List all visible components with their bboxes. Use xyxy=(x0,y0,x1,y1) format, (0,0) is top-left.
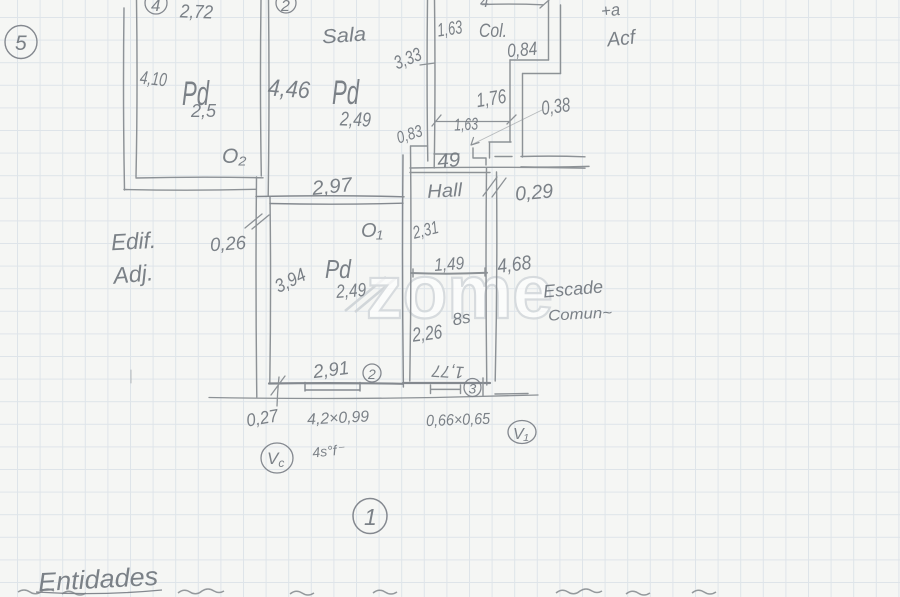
svg-text:3: 3 xyxy=(469,381,477,397)
svg-text:2,49: 2,49 xyxy=(339,108,372,131)
svg-text:2,72: 2,72 xyxy=(179,1,214,23)
svg-text:1: 1 xyxy=(364,504,377,530)
svg-text:V₁: V₁ xyxy=(513,426,529,443)
svg-text:4: 4 xyxy=(480,0,489,11)
svg-text:Pd: Pd xyxy=(325,254,352,284)
svg-text:5: 5 xyxy=(15,32,27,55)
svg-text:2,5: 2,5 xyxy=(190,101,217,121)
svg-text:2,26: 2,26 xyxy=(410,321,444,347)
svg-text:1,63: 1,63 xyxy=(436,17,464,41)
svg-text:Comun~: Comun~ xyxy=(548,304,613,324)
svg-text:1,77: 1,77 xyxy=(431,361,464,382)
svg-text:Edif.: Edif. xyxy=(110,227,156,255)
svg-text:4: 4 xyxy=(151,0,160,15)
svg-text:2: 2 xyxy=(367,366,376,382)
svg-text:O₁: O₁ xyxy=(361,220,383,242)
svg-text:4,46: 4,46 xyxy=(267,74,311,104)
svg-text:4,10: 4,10 xyxy=(139,68,168,92)
svg-text:0,26: 0,26 xyxy=(209,233,247,256)
svg-text:0,84: 0,84 xyxy=(506,39,538,63)
svg-text:2,49: 2,49 xyxy=(335,280,368,303)
svg-text:1,63: 1,63 xyxy=(454,114,479,134)
svg-text:2: 2 xyxy=(280,0,290,15)
svg-text:Hall: Hall xyxy=(427,180,464,203)
svg-text:0,29: 0,29 xyxy=(514,180,554,205)
svg-text:Col.: Col. xyxy=(479,21,507,42)
svg-text:0,66×0,65: 0,66×0,65 xyxy=(426,411,491,430)
svg-text:Adj.: Adj. xyxy=(110,259,154,289)
svg-text:O₂: O₂ xyxy=(222,145,246,168)
svg-text:+a: +a xyxy=(600,0,621,21)
svg-text:1,49: 1,49 xyxy=(433,253,464,275)
svg-text:Acf: Acf xyxy=(605,26,638,51)
svg-text:2,91: 2,91 xyxy=(311,358,350,383)
svg-text:49: 49 xyxy=(436,149,461,173)
svg-text:Sala: Sala xyxy=(321,23,366,48)
svg-text:Pd: Pd xyxy=(332,74,360,112)
svg-text:2,97: 2,97 xyxy=(310,174,354,200)
svg-text:8s: 8s xyxy=(451,307,473,329)
svg-text:0,38: 0,38 xyxy=(540,94,572,120)
svg-text:4,2×0,99: 4,2×0,99 xyxy=(307,408,370,428)
svg-text:4,68: 4,68 xyxy=(496,252,532,278)
